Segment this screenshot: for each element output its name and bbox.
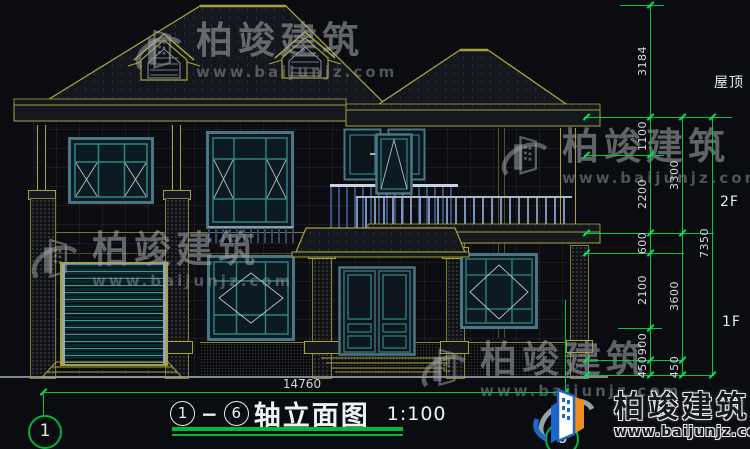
porch-canopy xyxy=(296,228,465,252)
title-scale: 1:100 xyxy=(387,403,447,425)
overall-dimension-line xyxy=(43,392,566,393)
dimension-label: 3184 xyxy=(636,39,650,83)
baijun-logo-color-icon xyxy=(524,384,608,448)
watermark: 柏竣建筑 www.baijunjz.com xyxy=(26,231,293,290)
dimension-line-vertical xyxy=(682,117,683,375)
dimension-label: 600 xyxy=(636,221,650,265)
level-line xyxy=(584,155,664,156)
watermark-url: www.baijunjz.com xyxy=(92,272,293,290)
baijun-logo-icon xyxy=(26,231,84,289)
overall-width-dimension: 14760 xyxy=(272,377,332,391)
axis-bubble-1: 1 xyxy=(28,415,62,449)
brand-logo-url: www.baijunjz.com xyxy=(614,424,750,440)
watermark-brand: 柏竣建筑 xyxy=(562,128,750,167)
watermark-url: www.baijunjz.com xyxy=(196,63,397,81)
roof-level-label: 屋顶 xyxy=(714,72,744,92)
dimension-label: 2100 xyxy=(636,268,650,312)
dimension-line-vertical xyxy=(650,5,651,375)
baijun-logo-icon xyxy=(496,128,554,186)
dimension-label: 3300 xyxy=(668,153,682,197)
title-axis-end: 6 xyxy=(224,401,249,426)
title-axis-start: 1 xyxy=(170,401,195,426)
dimension-line-vertical xyxy=(712,117,713,375)
watermark-brand: 柏竣建筑 xyxy=(92,231,293,270)
level-line xyxy=(620,5,664,6)
title-dash: − xyxy=(201,402,218,426)
dimension-label: 450 xyxy=(668,345,682,389)
title-underline-thin xyxy=(172,434,403,436)
dimension-label: 7350 xyxy=(698,221,712,265)
title-underline xyxy=(172,427,403,431)
floor-1-label: 1F xyxy=(722,314,741,330)
cad-elevation-drawing: 柏竣建筑 www.baijunjz.com 柏竣建筑 www.baijunjz.… xyxy=(0,0,750,449)
axis-line-1 xyxy=(43,392,44,415)
dimension-label: 450 xyxy=(636,345,650,389)
brand-logo: 柏竣建筑 www.baijunjz.com xyxy=(524,384,750,448)
baijun-logo-icon xyxy=(130,22,188,80)
floor-2-label: 2F xyxy=(720,194,739,210)
watermark: 柏竣建筑 www.baijunjz.com xyxy=(130,22,397,81)
watermark-brand: 柏竣建筑 xyxy=(196,22,397,61)
level-line xyxy=(584,253,684,254)
brand-logo-text: 柏竣建筑 xyxy=(614,392,750,424)
dimension-label: 1100 xyxy=(636,114,650,158)
baijun-logo-icon xyxy=(416,341,472,397)
watermark-url: www.baijunjz.com xyxy=(562,169,750,187)
dimension-label: 2200 xyxy=(636,172,650,216)
dimension-label: 3600 xyxy=(668,274,682,318)
